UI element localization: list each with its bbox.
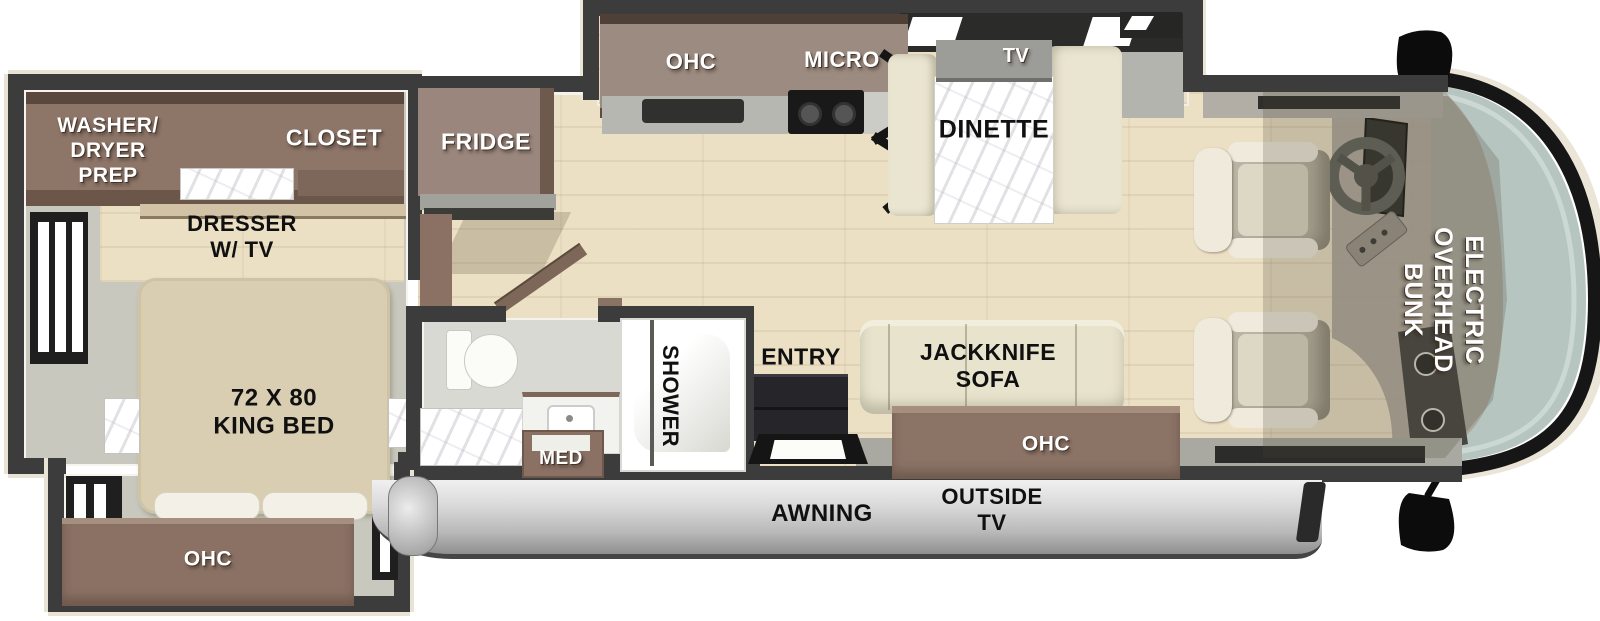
window-pane xyxy=(38,222,49,352)
sofa-seam xyxy=(1075,324,1077,410)
kitchen-ohc-label: OHC xyxy=(666,49,716,75)
side-mirror-bottom-icon xyxy=(1399,493,1455,552)
kitchen-sink xyxy=(642,99,744,123)
window-pane xyxy=(72,222,83,352)
shower-label: SHOWER xyxy=(657,345,683,447)
closet-counter-dark xyxy=(298,170,404,196)
dresser-tv-label: DRESSER W/ TV xyxy=(187,211,297,263)
bedroom-cabinet-top-edge xyxy=(26,92,404,104)
awning-end-cap xyxy=(388,476,438,556)
window-pane xyxy=(55,222,66,352)
dinette-label: DINETTE xyxy=(939,115,1049,145)
king-bed-label: 72 X 80 KING BED xyxy=(213,385,334,442)
bedroom-ohc-label: OHC xyxy=(184,548,232,573)
dinette-tv xyxy=(936,40,1052,82)
entry-platform-seam xyxy=(754,407,848,410)
bed-pillow xyxy=(262,492,368,520)
overhead-bunk-label: ELECTRIC OVERHEAD BUNK xyxy=(1397,150,1489,450)
toilet-bowl xyxy=(464,334,518,388)
chair-backrest xyxy=(1194,148,1232,252)
washer-dryer-prep-label: WASHER/ DRYER PREP xyxy=(57,114,159,188)
fridge-label: FRIDGE xyxy=(441,128,531,155)
living-ohc-label: OHC xyxy=(1022,433,1070,458)
med-label: MED xyxy=(539,448,583,470)
cooktop xyxy=(788,90,864,134)
shower-stall xyxy=(620,318,746,472)
burner-icon xyxy=(832,102,856,126)
bedroom-wall-left xyxy=(8,74,24,474)
dinette-bench-left xyxy=(888,54,938,216)
faucet-icon xyxy=(566,415,573,422)
rv-floorplan: WASHER/ DRYER PREP CLOSET DRESSER W/ TV … xyxy=(0,0,1600,621)
slide-wall-right xyxy=(1183,0,1203,92)
dinette-table xyxy=(934,76,1054,224)
entry-platform xyxy=(754,374,848,441)
burner-icon xyxy=(798,102,822,126)
bedroom-wall-top xyxy=(8,74,422,90)
bathroom-counter xyxy=(420,408,526,466)
sofa-seam xyxy=(888,324,890,410)
chair-backrest xyxy=(1194,318,1232,422)
washer-counter xyxy=(180,168,294,200)
jackknife-sofa-label: JACKKNIFE SOFA xyxy=(920,339,1056,393)
shower-door xyxy=(650,320,654,466)
fridge-side xyxy=(540,88,554,196)
micro-label: MICRO xyxy=(804,47,880,73)
entry-step-tread xyxy=(770,440,846,459)
dinette-bench-right xyxy=(1046,46,1122,214)
closet-label: CLOSET xyxy=(286,124,382,151)
bedroom-window-left xyxy=(30,212,88,364)
awning-label: AWNING xyxy=(771,500,873,528)
tv-label: TV xyxy=(1003,45,1030,69)
nightstand-right xyxy=(388,398,408,448)
kitchen-lower-cabinet xyxy=(420,214,452,310)
nightstand-left xyxy=(104,398,140,454)
bed-pillow xyxy=(154,492,260,520)
entry-label: ENTRY xyxy=(761,343,841,370)
outside-tv-label: OUTSIDE TV xyxy=(941,484,1042,536)
